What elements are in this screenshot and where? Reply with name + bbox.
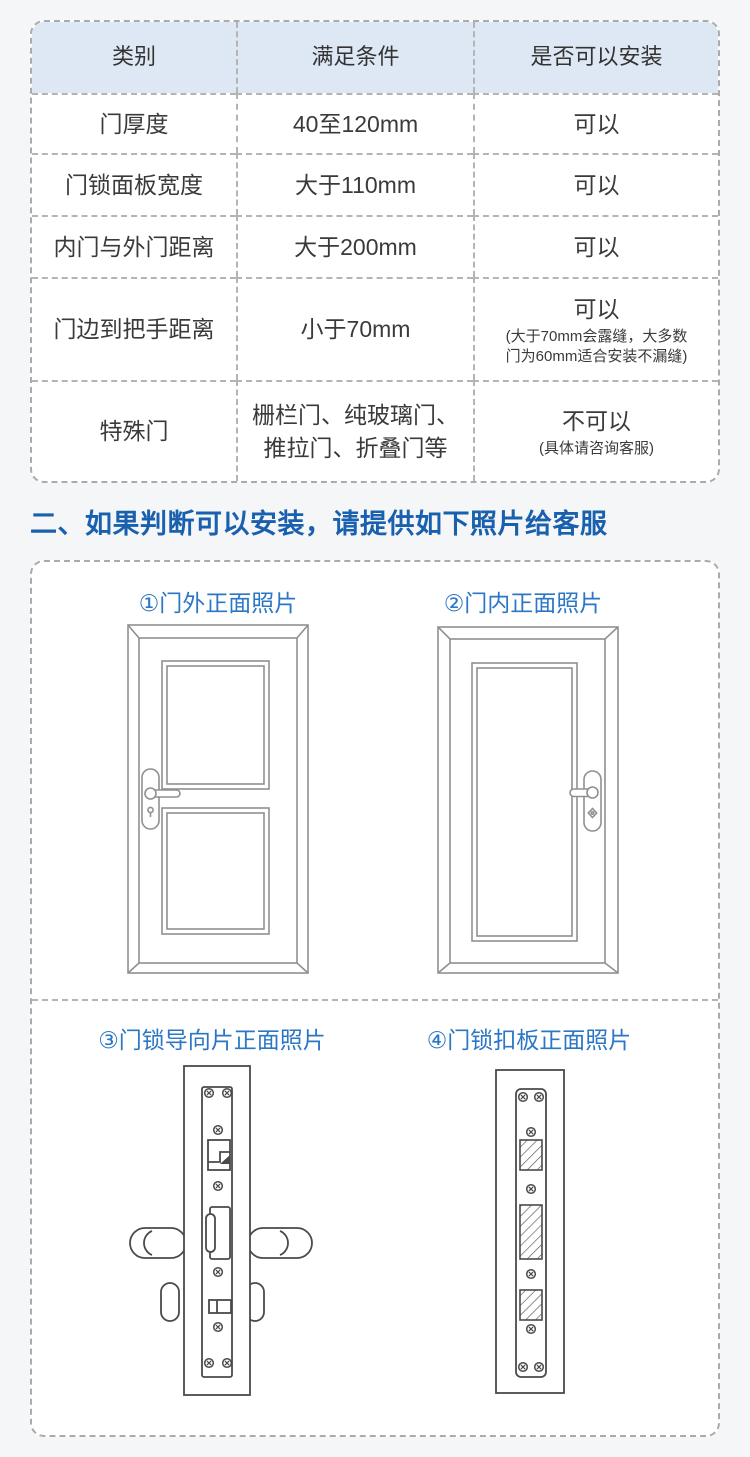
table-row-cell-result: 不可以 (具体请咨询客服) [473, 380, 718, 481]
dead-bolt [206, 1207, 230, 1259]
table-row-cell-category: 门厚度 [32, 93, 236, 153]
result-text: 可以 [574, 293, 620, 325]
lock-guide-plate-diagram [120, 1064, 314, 1397]
table-row-cell-category: 门边到把手距离 [32, 277, 236, 380]
table-row-cell-result: 可以 [473, 215, 718, 277]
result-note: (大于70mm会露缝，大多数 门为60mm适合安装不漏缝) [506, 327, 688, 366]
anti-lock-button [209, 1300, 231, 1313]
lock-lever-right [248, 1228, 312, 1258]
table-header-condition: 满足条件 [236, 22, 473, 93]
table-row-cell-condition: 小于70mm [236, 277, 473, 380]
install-requirements-table: 类别 满足条件 是否可以安装 门厚度 40至120mm 可以 门锁面板宽度 大于… [30, 20, 720, 483]
table-row-cell-category: 内门与外门距离 [32, 215, 236, 277]
strike-hole-auxiliary [520, 1290, 542, 1320]
result-text: 可以 [574, 169, 620, 201]
table-row-cell-condition: 大于110mm [236, 153, 473, 215]
label-lock-guide-plate-photo: ③门锁导向片正面照片 [72, 1021, 352, 1055]
table-row-cell-category: 门锁面板宽度 [32, 153, 236, 215]
table-header-installable: 是否可以安装 [473, 22, 718, 93]
table-header-category: 类别 [32, 22, 236, 93]
result-text: 可以 [574, 231, 620, 263]
result-note: (具体请咨询客服) [539, 439, 654, 459]
table-row-cell-result: 可以 [473, 93, 718, 153]
lock-lever-left [130, 1228, 186, 1258]
label-lock-strike-plate-photo: ④门锁扣板正面照片 [389, 1021, 669, 1055]
panel-divider [32, 999, 718, 1001]
label-door-interior-photo: ②门内正面照片 [383, 584, 663, 618]
table-row-cell-condition: 栅栏门、纯玻璃门、 推拉门、折叠门等 [236, 380, 473, 481]
label-door-exterior-photo: ①门外正面照片 [78, 584, 358, 618]
lock-strike-plate-diagram [494, 1064, 574, 1395]
door-interior-diagram [437, 626, 619, 974]
cylinder-escutcheon-left [161, 1283, 179, 1321]
table-row-cell-condition: 40至120mm [236, 93, 473, 153]
table-row-cell-condition: 大于200mm [236, 215, 473, 277]
table-row-cell-result: 可以 (大于70mm会露缝，大多数 门为60mm适合安装不漏缝) [473, 277, 718, 380]
section-heading: 二、如果判断可以安装，请提供如下照片给客服 [30, 502, 730, 541]
table-row-cell-category: 特殊门 [32, 380, 236, 481]
strike-hole-latch [520, 1140, 542, 1170]
door-exterior-diagram [127, 624, 309, 974]
photo-instructions-panel: ①门外正面照片 ②门内正面照片 ③门锁导向片正面照片 ④门锁扣板正面照片 [30, 560, 720, 1437]
table-row-cell-result: 可以 [473, 153, 718, 215]
result-text: 不可以 [562, 405, 631, 437]
strike-hole-deadbolt [520, 1205, 542, 1259]
result-text: 可以 [574, 108, 620, 140]
